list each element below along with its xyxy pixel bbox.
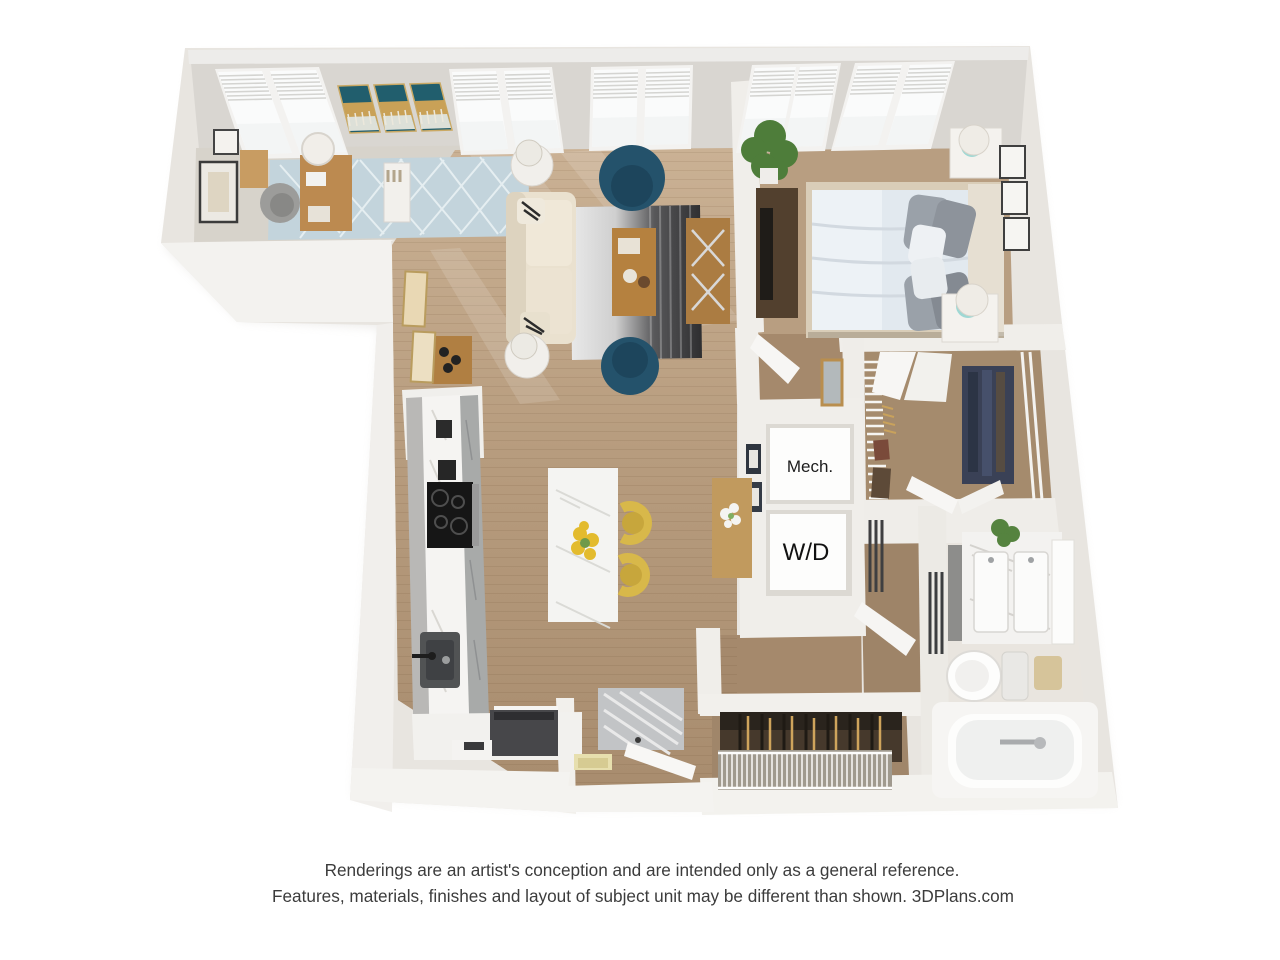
svg-text:W/D: W/D (783, 539, 830, 566)
svg-text:Mech.: Mech. (787, 457, 833, 476)
svg-text:Features, materials, finishes: Features, materials, finishes and layout… (272, 886, 1014, 906)
svg-text:Renderings are an artist's con: Renderings are an artist's conception an… (325, 860, 960, 880)
